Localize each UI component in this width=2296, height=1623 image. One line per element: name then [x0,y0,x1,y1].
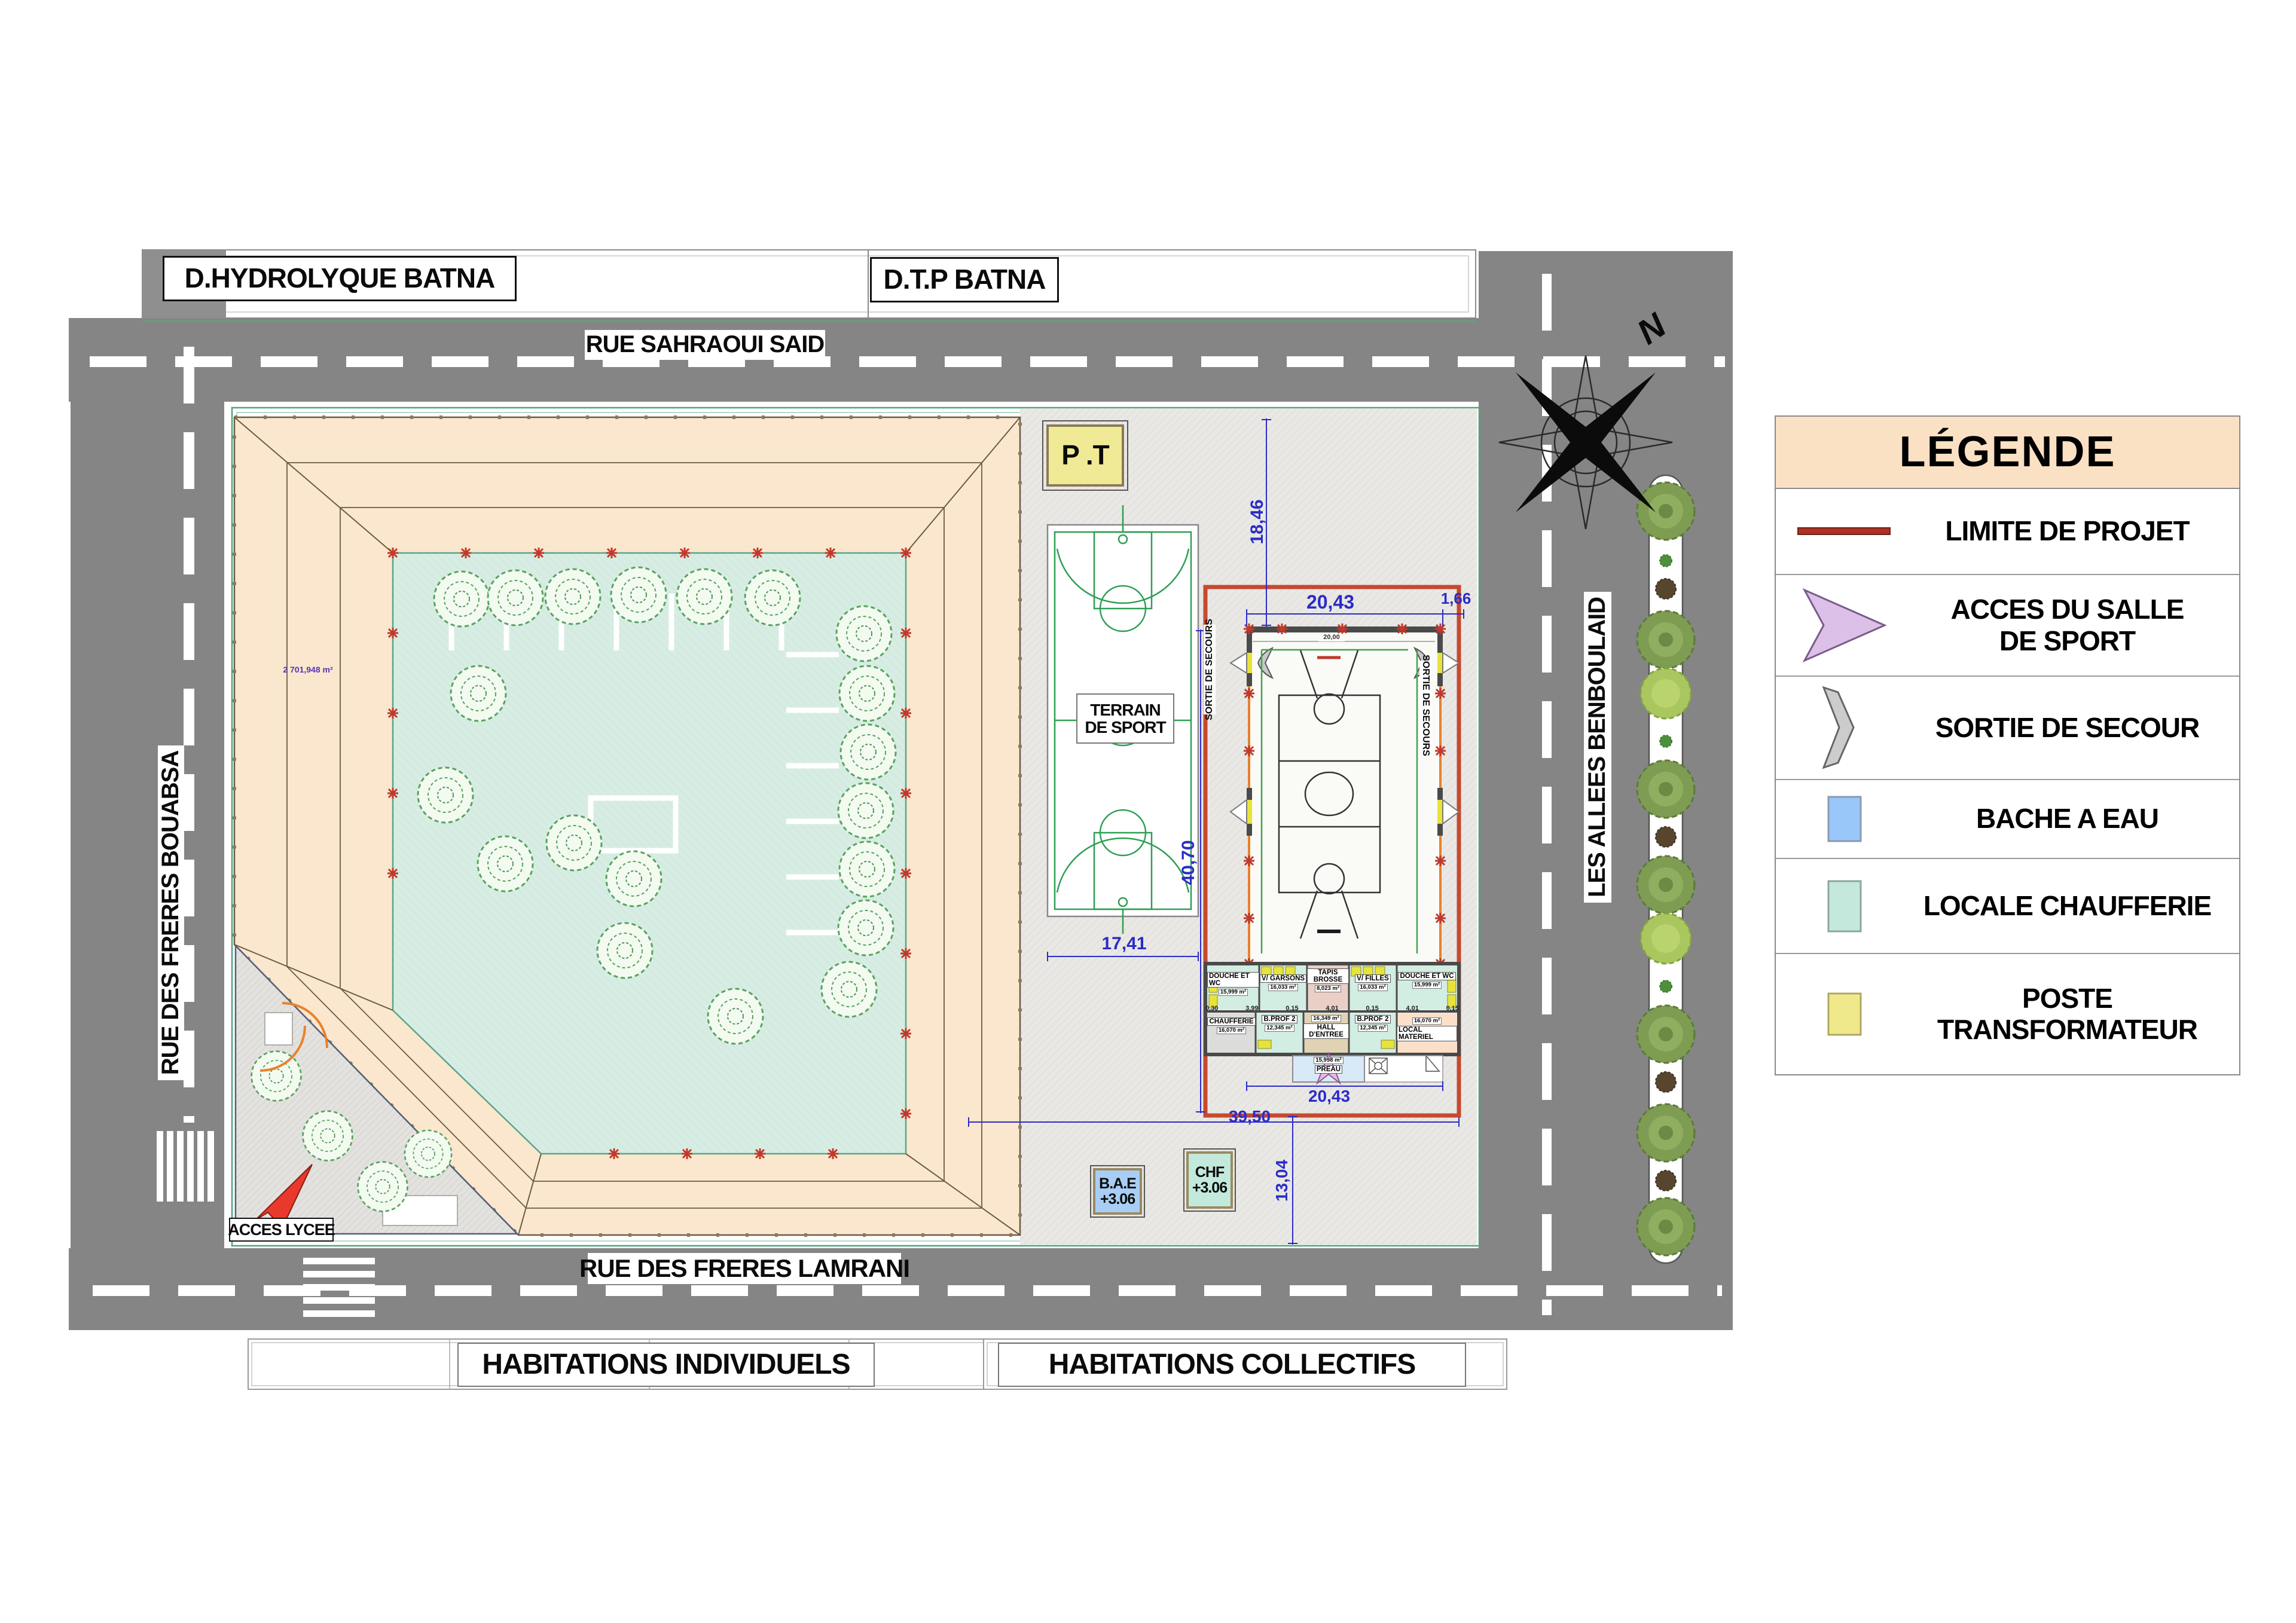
parcel-label-habitations-collectifs: HABITATIONS COLLECTIFS [998,1343,1466,1387]
bache-a-eau-icon [1776,795,1913,843]
sortie-de-secour-icon [1776,683,1913,772]
dim-17-41: 17,41 [1094,935,1154,953]
chf-label: CHF +3.06 [1187,1153,1232,1208]
terrain-line2: DE SPORT [1085,719,1165,736]
street-label-benboulaid: LES ALLEES BENBOULAID [1584,592,1611,903]
poste-transformateur-icon [1776,992,1913,1037]
terrain-line1: TERRAIN [1090,701,1160,719]
chf-name: CHF [1195,1164,1224,1180]
dim-1-66: 1,66 [1435,591,1477,607]
wall-dim: 0,15 [1366,1005,1378,1012]
wall-dim: 0,15 [1286,1005,1298,1012]
legend-label: LOCALE CHAUFFERIE [1923,890,2211,922]
wall-dim: 4,01 [1326,1005,1338,1012]
site-plan-canvas: D.HYDROLYQUE BATNA D.T.P BATNA RUE SAHRA… [0,0,2296,1623]
parcel-label-habitations-individuels: HABITATIONS INDIVIDUELS [457,1343,875,1387]
dim-20-43-top: 20,43 [1297,593,1363,612]
sortie-secours-label-right: SORTIE DE SECOURS [1419,661,1431,750]
legend-label: DE SPORT [1999,625,2135,657]
chf-level: +3.06 [1192,1180,1227,1196]
bae-name: B.A.E [1099,1176,1136,1191]
wall-dim: 0,30 [1205,1005,1218,1012]
legend-row-poste: POSTE TRANSFORMATEUR [1776,954,2239,1074]
pt-label: P .T [1048,426,1123,485]
legend-row-sortie: SORTIE DE SECOUR [1776,677,2239,780]
annex-wall-dims: 0,30 3,99 0,15 4,01 0,15 4,01 0,15 [1205,1005,1459,1012]
legend-label: ACCES DU SALLE [1951,594,2184,625]
legend-row-bache: BACHE A EAU [1776,780,2239,860]
street-label-bouabsa: RUE DES FRERES BOUABSA [158,745,184,1080]
parcel-label-dtp: D.T.P BATNA [870,257,1059,302]
bae-label: B.A.E +3.06 [1094,1169,1141,1214]
legend-label: SORTIE DE SECOUR [1935,712,2200,744]
limite-de-projet-icon [1776,525,1913,537]
legend-label: LIMITE DE PROJET [1945,515,2189,547]
street-label-lamrani: RUE DES FRERES LAMRANI [588,1253,901,1284]
legend-label: TRANSFORMATEUR [1937,1014,2197,1046]
dim-40-70: 40,70 [1180,833,1198,893]
dim-39-50: 39,50 [1220,1109,1280,1124]
wall-dim: 4,01 [1406,1005,1418,1012]
wall-dim: 0,15 [1446,1005,1459,1012]
legend-row-acces: ACCES DU SALLE DE SPORT [1776,575,2239,677]
locale-chaufferie-icon [1776,879,1913,933]
wall-dim: 3,99 [1245,1005,1258,1012]
acces-salle-sport-icon [1776,586,1913,664]
dim-20-43-bottom: 20,43 [1302,1088,1356,1105]
street-label-sahraoui: RUE SAHRAOUI SAID [585,330,825,360]
legend-panel: LÉGENDE LIMITE DE PROJET ACCES DU SALLE … [1775,415,2240,1075]
legend-row-chaufferie: LOCALE CHAUFFERIE [1776,859,2239,954]
dim-13-04: 13,04 [1273,1151,1291,1211]
legend-label: BACHE A EAU [1976,803,2158,835]
sortie-secours-label-left: SORTIE DE SECOURS [1204,625,1216,714]
courtyard-area-label: 2 701,948 m² [269,664,347,676]
dim-18-46: 18,46 [1248,492,1266,552]
parcel-label-hydrolyque: D.HYDROLYQUE BATNA [163,256,517,301]
hall-inner-dim: 20,00 [1318,634,1345,641]
legend-row-limite: LIMITE DE PROJET [1776,489,2239,575]
bae-level: +3.06 [1100,1191,1135,1207]
legend-label: POSTE [2022,983,2112,1014]
terrain-de-sport-label: TERRAIN DE SPORT [1076,693,1174,744]
legend-title: LÉGENDE [1776,417,2239,489]
acces-lycee-label: ACCES LYCEE [229,1218,334,1242]
